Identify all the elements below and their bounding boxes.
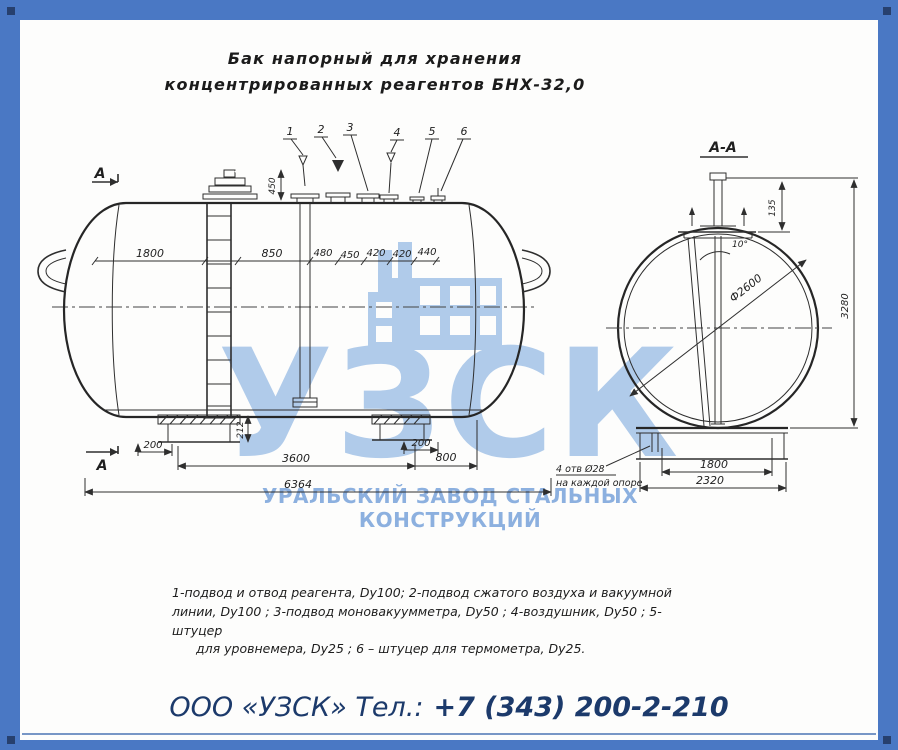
legend-line3: для уровнемера, Dу25 ; 6 – штуцер для те…: [172, 640, 712, 659]
section-support: [636, 428, 788, 459]
dim-overall-length: 6364: [284, 478, 312, 491]
callout-4: 4: [394, 126, 401, 139]
section-label-top: А: [94, 166, 106, 182]
saddle-supports: [158, 415, 432, 442]
dim-420b: 420: [392, 249, 411, 260]
callout-5: 5: [429, 125, 436, 138]
callout-2: 2: [318, 123, 325, 136]
dim-1800: 1800: [136, 247, 164, 260]
legend-notes: 1-подвод и отвод реагента, Dу100; 2-подв…: [172, 584, 712, 659]
drawing-title-line2: концентрированных реагентов БНХ-32,0: [150, 72, 600, 98]
dim-angle: 10°: [732, 240, 748, 250]
manhole: [203, 168, 263, 199]
section-label-bottom: А: [96, 458, 108, 474]
dim-offset-right: 200: [411, 438, 430, 449]
holes-note-line1: 4 отв Ø28: [556, 464, 605, 475]
drawing-title: Бак напорный для хранения концентрирован…: [150, 46, 600, 99]
footer-rule: [22, 733, 876, 735]
legend-line2: линии, Dу100 ; 3-подвод моновакуумметра,…: [172, 603, 712, 641]
dim-diameter: Ф2600: [727, 272, 765, 305]
footer-company: ООО «УЗСК» Тел.:: [169, 692, 423, 723]
footer-phone: +7 (343) 200-2-210: [433, 692, 728, 723]
dim-nozzle-height: 450: [268, 177, 278, 194]
dim-850: 850: [262, 247, 283, 260]
drawing-title-line1: Бак напорный для хранения: [150, 46, 600, 72]
dim-base-overall: 2320: [696, 474, 724, 487]
callout-3: 3: [347, 121, 354, 134]
footer: ООО «УЗСК» Тел.:+7 (343) 200-2-210: [20, 692, 878, 723]
dim-440: 440: [417, 247, 436, 258]
section-title: А-А: [708, 140, 736, 156]
dim-420a: 420: [366, 248, 385, 259]
section-aa-view: А-А Ф2600 10°: [556, 140, 858, 492]
dim-saddle-height: 212: [236, 421, 246, 438]
dim-stub-height: 135: [768, 199, 778, 216]
dim-end-span: 800: [436, 451, 457, 464]
dim-450: 450: [340, 250, 359, 261]
callout-6: 6: [461, 125, 468, 138]
dim-base-inner: 1800: [700, 458, 728, 471]
page-frame: УЗСК УРАЛЬСКИЙ ЗАВОД СТАЛЬНЫХ КОНСТРУКЦИ…: [0, 0, 898, 750]
tank-side-view: 1 2 3 4 5 6 450 1800 850 480 450 420 420…: [38, 121, 551, 496]
callout-leaders: [283, 135, 471, 193]
dim-overall-height: 3280: [840, 293, 851, 318]
holes-note-line2: на каждой опоре: [556, 478, 643, 489]
dim-offset-left: 200: [143, 440, 162, 451]
dim-480: 480: [313, 248, 332, 259]
callout-1: 1: [287, 125, 294, 138]
legend-line1: 1-подвод и отвод реагента, Dу100; 2-подв…: [172, 584, 712, 603]
dim-span: 3600: [282, 452, 310, 465]
